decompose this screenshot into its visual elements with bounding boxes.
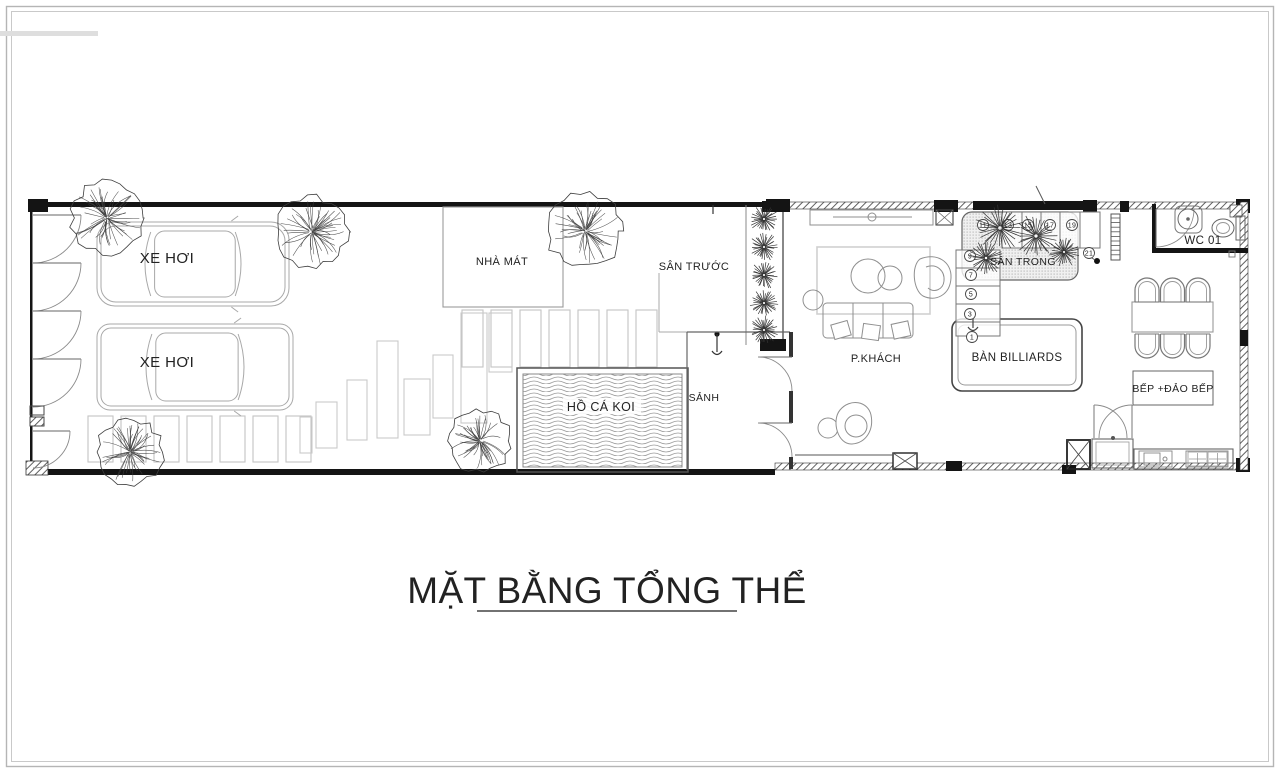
shrub-icon	[752, 233, 778, 260]
car-body-inner	[101, 328, 289, 406]
drawing-title: MẶT BẰNG TỔNG THỂ	[407, 568, 806, 611]
living-room-area	[803, 210, 953, 444]
lobby-door-jamb	[789, 332, 793, 357]
paver	[253, 416, 278, 462]
dining-chair	[1186, 334, 1210, 358]
room-label-front-yard: SÂN TRƯỚC	[659, 260, 730, 273]
paver	[220, 416, 245, 462]
room-label-pavilion: NHÀ MÁT	[476, 255, 528, 268]
shrub-icon	[750, 290, 778, 315]
railing-screen	[1111, 214, 1120, 260]
lobby-door-jamb	[789, 391, 793, 423]
tree-icon	[448, 409, 511, 472]
wall-column-block	[1083, 200, 1097, 212]
gate-swing-arc	[33, 263, 81, 311]
shrub-spike	[763, 276, 764, 286]
wall-column-block	[1240, 330, 1248, 346]
car-mirror	[231, 307, 238, 312]
car-mirror	[234, 411, 241, 416]
door-swing-arc	[758, 423, 792, 457]
dining-chair	[1161, 334, 1185, 358]
car-icon	[97, 318, 293, 416]
paver	[187, 416, 212, 462]
tree-icon	[70, 179, 144, 256]
stepping-stone	[347, 380, 367, 440]
coffee-table	[851, 259, 885, 293]
dining-table	[1132, 302, 1213, 332]
wc-corner-pier	[1230, 205, 1242, 217]
room-label-living-room: P.KHÁCH	[851, 352, 901, 365]
paver	[607, 310, 628, 367]
sofa-pillow	[831, 320, 851, 339]
side-table	[803, 290, 823, 310]
room-label-lobby: SẢNH	[689, 391, 720, 404]
stepping-stone	[404, 379, 430, 435]
top-wall-solid-segment	[973, 201, 1087, 210]
wc-bottom-wall	[1152, 248, 1248, 253]
coffee-table-small	[878, 266, 902, 290]
wc-area	[1152, 204, 1248, 257]
stair-step-number: 21	[1085, 250, 1094, 257]
dining-chair	[1186, 278, 1210, 302]
shrub-icon	[752, 262, 777, 288]
kitchen-faucet	[1163, 457, 1167, 461]
wall-column-block	[28, 199, 48, 212]
car-windshield	[238, 334, 244, 400]
car-mirror	[234, 318, 241, 323]
dining-chair	[1161, 278, 1185, 302]
paver	[286, 416, 311, 462]
room-label-wc: WC 01	[1184, 235, 1221, 247]
chair-back-inner	[1164, 282, 1181, 302]
paver	[549, 310, 570, 367]
sofa-pillow	[891, 321, 911, 339]
stepping-stone	[377, 341, 398, 438]
car-body	[97, 324, 293, 410]
chair-back-inner	[1139, 334, 1156, 355]
gate-swing-arc	[33, 311, 81, 359]
stair-datum-dot	[1094, 258, 1100, 264]
left-boundary-wall	[30, 207, 33, 470]
wall-column-block	[946, 461, 962, 471]
room-label-inner-courtyard: SÂN TRONG	[990, 255, 1056, 268]
paver	[462, 310, 483, 367]
stair-step-number: 7	[969, 272, 973, 279]
pantry-door-pivot	[1111, 436, 1115, 440]
chair-back-inner	[1164, 334, 1181, 355]
room-label-billiards: BÀN BILLIARDS	[972, 351, 1063, 364]
stair-step-number: 3	[968, 311, 972, 318]
barrel-armchair-inner	[926, 266, 944, 290]
rug-outline	[817, 247, 930, 314]
room-label-koi-pond: HỒ CÁ KOI	[567, 399, 635, 414]
sofa-pillow	[862, 323, 881, 340]
stair-step-number: 5	[969, 291, 973, 298]
barrel-armchair	[914, 257, 951, 298]
chair-back-inner	[1190, 282, 1207, 302]
wc-sink-drain	[1186, 217, 1190, 221]
chair-back-inner	[1139, 282, 1156, 302]
stepping-stone	[316, 402, 337, 448]
gate-pier	[30, 417, 44, 426]
stepping-stone	[489, 313, 512, 372]
chair-back-inner	[1190, 334, 1207, 355]
room-label-car-bottom: XE HƠI	[140, 354, 194, 371]
lounge-side-table	[818, 418, 838, 438]
dining-area	[1132, 278, 1213, 358]
paver	[491, 310, 512, 367]
artifact-smudge	[0, 31, 98, 36]
paver	[520, 310, 541, 367]
lobby-door-jamb	[789, 457, 793, 469]
floor-plan-canvas: 13579111315171921 XE HƠIXE HƠINHÀ MÁTSÂN…	[0, 0, 1280, 773]
tree-crown-outline	[70, 179, 144, 256]
wc-left-wall	[1152, 204, 1156, 250]
car-mirror	[231, 216, 238, 221]
dining-chair	[1135, 278, 1159, 302]
tree-crown-outline	[548, 192, 623, 266]
fridge-inner	[1096, 442, 1129, 465]
dining-chair	[1135, 334, 1159, 358]
title-block: MẶT BẰNG TỔNG THỂ	[407, 568, 806, 611]
room-label-car-top: XE HƠI	[140, 250, 194, 267]
stair-step-number: 1	[970, 334, 974, 341]
tree-icon	[548, 192, 623, 266]
room-label-kitchen: BẾP +ĐẢO BẾP	[1132, 382, 1213, 395]
wall-column-block	[1120, 201, 1129, 212]
shrub-spike	[756, 292, 763, 302]
door-swing-arc	[758, 357, 792, 391]
paver	[636, 310, 657, 367]
stepping-stone	[300, 417, 312, 453]
paver	[578, 310, 599, 367]
pond-water	[523, 374, 682, 467]
gate-swing-arc	[33, 359, 81, 407]
stepping-stone	[433, 355, 453, 418]
shrub-spike	[765, 236, 774, 246]
car-windshield	[235, 232, 241, 296]
stair-step-number: 19	[1068, 222, 1077, 229]
stair-step-number: 9	[968, 253, 972, 260]
toilet-bowl-inner	[1217, 223, 1230, 234]
koi-pond-area	[517, 368, 688, 472]
shrub-spike	[763, 290, 764, 302]
